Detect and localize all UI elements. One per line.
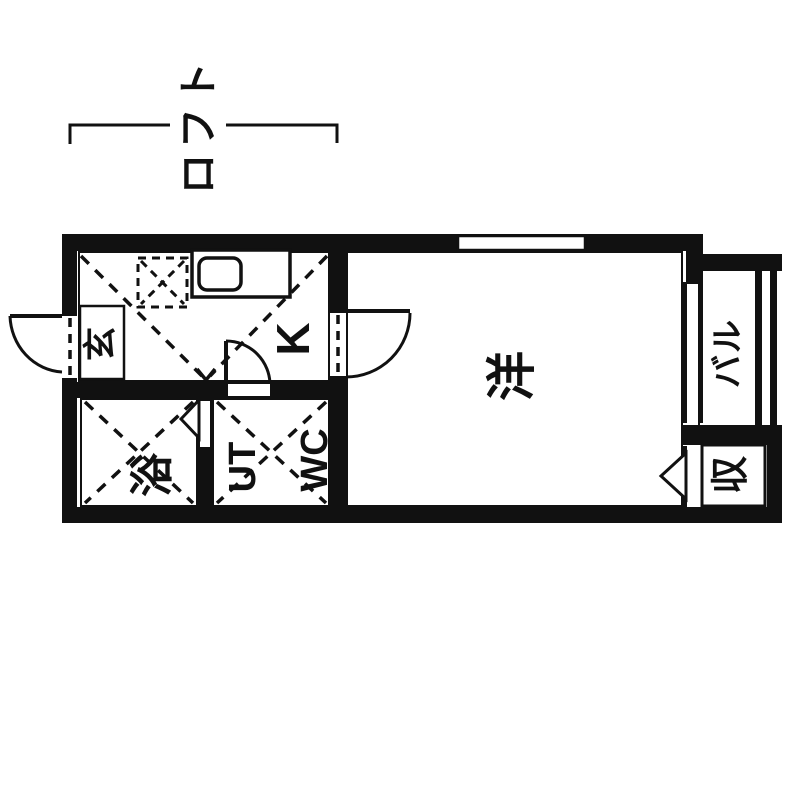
entrance-door [10,316,70,376]
wall-bottom [62,507,782,523]
label-main-room: 洋 [487,351,537,401]
kitchen-main-door [338,311,410,377]
wall-top [62,234,703,251]
loft-hatch [138,258,187,307]
kitchen-fixtures [138,250,290,307]
balcony-railing-outer [770,271,777,425]
top-window [458,236,585,250]
kitchen-sink [199,258,241,290]
label-balcony: バル [711,318,744,388]
label-loft: ロフト [179,56,219,194]
kitchen-loft-arrow [197,369,215,380]
kitchen-main-door-arc [346,313,410,377]
kitchen-utility-door-opening [227,383,271,397]
balcony-window-jamb-left [683,282,687,423]
loft-hatch-diagonal-2 [141,261,184,304]
bath-door-opening [199,400,211,448]
label-storage: 収 [712,456,750,494]
wall-balcony-bottom [683,425,782,445]
loft-bracket-left [70,125,170,144]
wall-left-upper [62,234,77,316]
loft-bracket-right [226,125,337,143]
kitchen-utility-door [226,341,271,397]
kitchen-utility-door-arc [226,341,270,385]
label-toilet: WC [296,428,334,491]
room-outlines [79,252,765,506]
label-bath: 浴 [131,453,175,497]
label-utility: UT [224,442,262,493]
floor-plan-canvas: ロフト 玄 K 浴 UT WC 洋 バル 収 [0,0,800,800]
wall-closet-right [767,445,782,509]
label-kitchen: K [270,322,316,355]
wall-left-lower [62,378,77,523]
closet-door-arrow [661,453,686,499]
label-entrance: 玄 [84,327,118,361]
wall-mid-vertical-upper [330,247,346,313]
entrance-door-arc [10,316,62,372]
wall-mid-horizontal-left [62,382,226,398]
floor-plan-drawing [0,0,800,800]
